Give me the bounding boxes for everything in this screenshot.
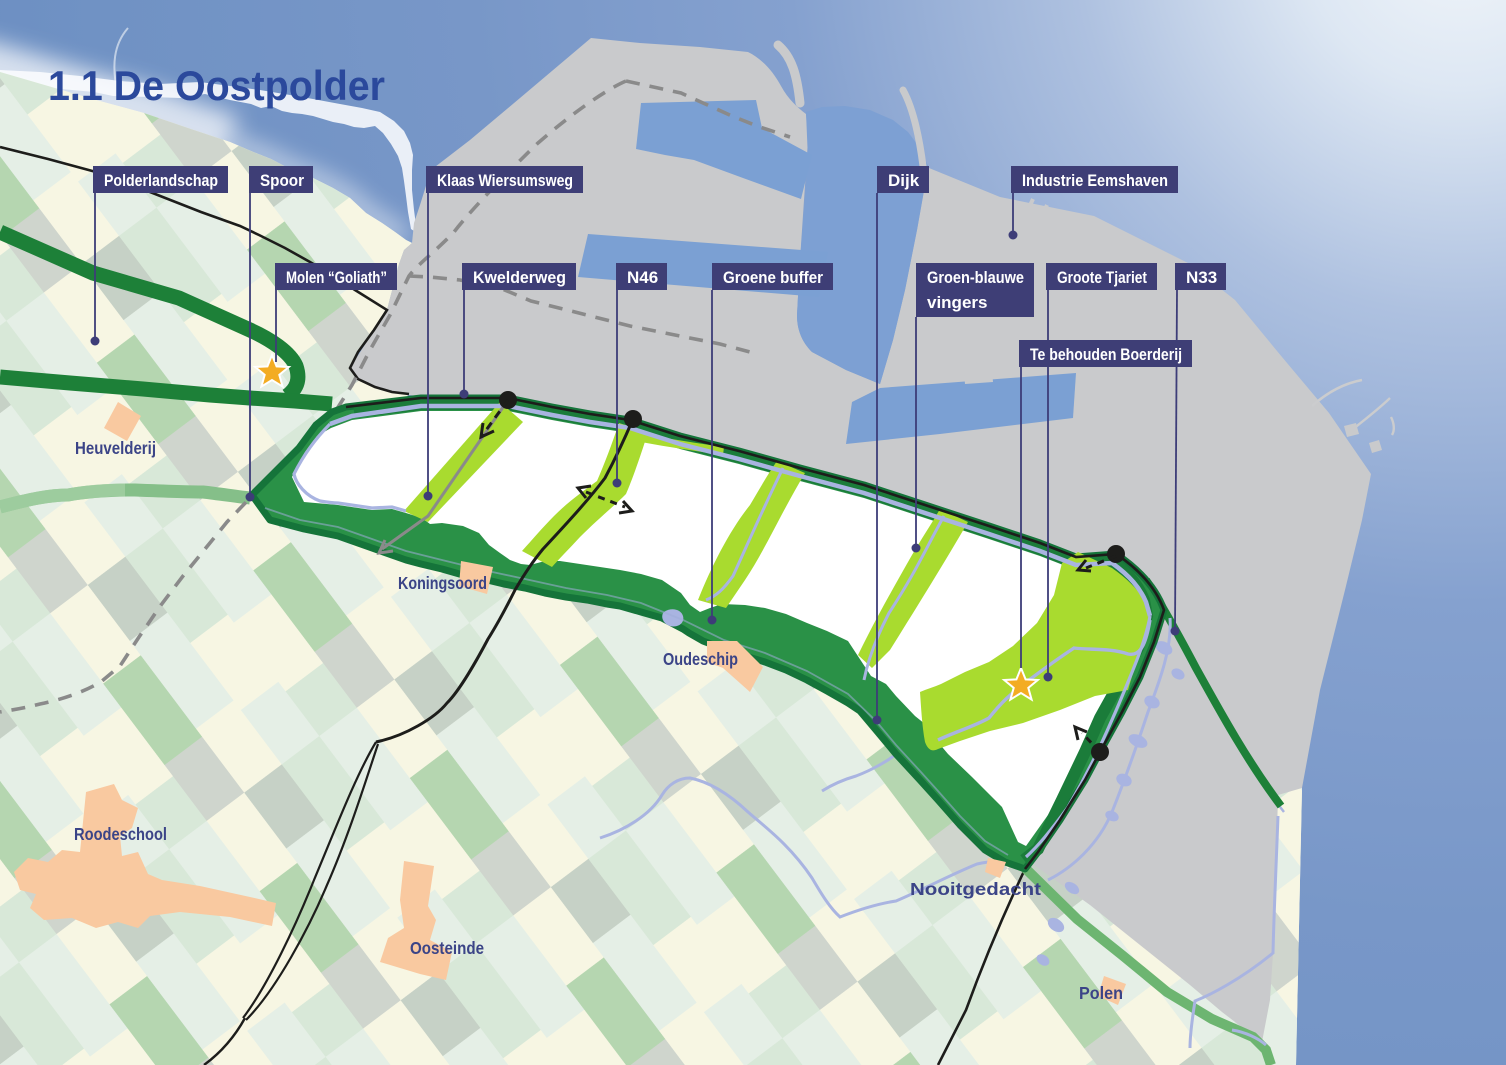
svg-text:Groene buffer: Groene buffer: [723, 268, 823, 287]
svg-text:Roodeschool: Roodeschool: [74, 824, 167, 844]
svg-text:Koningsoord: Koningsoord: [398, 573, 487, 593]
svg-text:N33: N33: [1186, 268, 1217, 287]
svg-text:1.1 De Oostpolder: 1.1 De Oostpolder: [48, 62, 385, 109]
svg-text:Groen-blauwe: Groen-blauwe: [927, 268, 1024, 287]
svg-text:Oudeschip: Oudeschip: [663, 649, 738, 669]
svg-text:Kwelderweg: Kwelderweg: [473, 268, 566, 287]
svg-text:Dijk: Dijk: [888, 171, 920, 190]
svg-text:Klaas Wiersumsweg: Klaas Wiersumsweg: [437, 171, 573, 190]
svg-text:Oosteinde: Oosteinde: [410, 938, 484, 958]
svg-text:Nooitgedacht: Nooitgedacht: [910, 879, 1041, 899]
svg-text:Molen “Goliath”: Molen “Goliath”: [286, 268, 387, 287]
svg-text:Te behouden Boerderij: Te behouden Boerderij: [1030, 345, 1182, 364]
svg-text:Groote Tjariet: Groote Tjariet: [1057, 268, 1147, 287]
svg-text:Heuvelderij: Heuvelderij: [75, 438, 156, 458]
svg-text:Polderlandschap: Polderlandschap: [104, 171, 218, 190]
svg-text:Spoor: Spoor: [260, 171, 304, 190]
svg-text:N46: N46: [627, 268, 658, 287]
svg-text:Industrie Eemshaven: Industrie Eemshaven: [1022, 171, 1168, 190]
svg-text:vingers: vingers: [927, 293, 987, 312]
svg-text:Polen: Polen: [1079, 983, 1123, 1003]
